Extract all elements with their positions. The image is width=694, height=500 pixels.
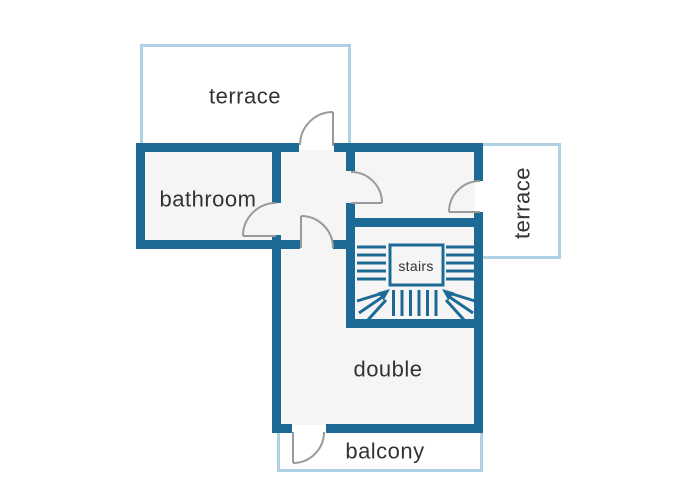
wall-double-left [272,235,281,433]
floor-plan-canvas: terrace bathroom terrace stairs double b… [0,0,694,500]
floor-double-room [281,248,475,425]
label-terrace-right: terrace [510,167,535,239]
wall-hall-right-upper [346,143,355,171]
wall-stairs-top [347,218,483,227]
label-double: double [353,357,422,382]
wall-stairs-left [346,203,355,328]
label-stairs: stairs [398,258,433,274]
label-bathroom: bathroom [160,187,257,212]
wall-right-upper [474,143,483,181]
floor-plan: terrace bathroom terrace stairs double b… [0,0,694,500]
label-balcony: balcony [345,439,424,464]
wall-bathroom-right-upper [272,143,281,203]
wall-top-right [334,143,483,152]
wall-right-lower [474,212,483,433]
wall-bottom-right [326,424,483,433]
wall-bathroom-left [136,143,145,249]
label-terrace-top: terrace [209,84,281,109]
